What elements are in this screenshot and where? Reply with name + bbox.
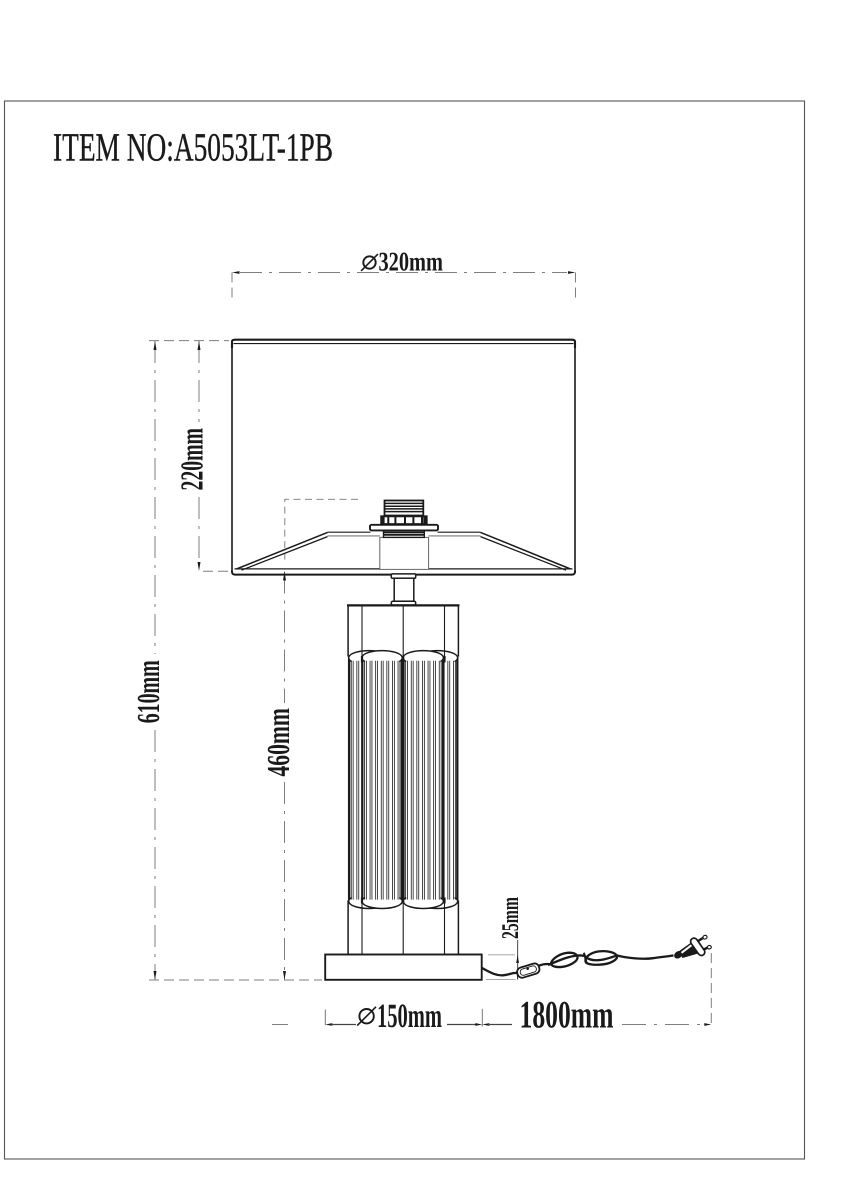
svg-text:150mm: 150mm [377, 998, 442, 1035]
svg-text:1800mm: 1800mm [520, 994, 614, 1037]
svg-text:25mm: 25mm [498, 897, 524, 939]
svg-text:320mm: 320mm [379, 246, 444, 276]
svg-text:ITEM NO:A5053LT-1PB: ITEM NO:A5053LT-1PB [53, 125, 333, 170]
svg-text:460mm: 460mm [260, 708, 296, 777]
svg-text:610mm: 610mm [130, 660, 166, 723]
svg-text:220mm: 220mm [174, 428, 210, 491]
